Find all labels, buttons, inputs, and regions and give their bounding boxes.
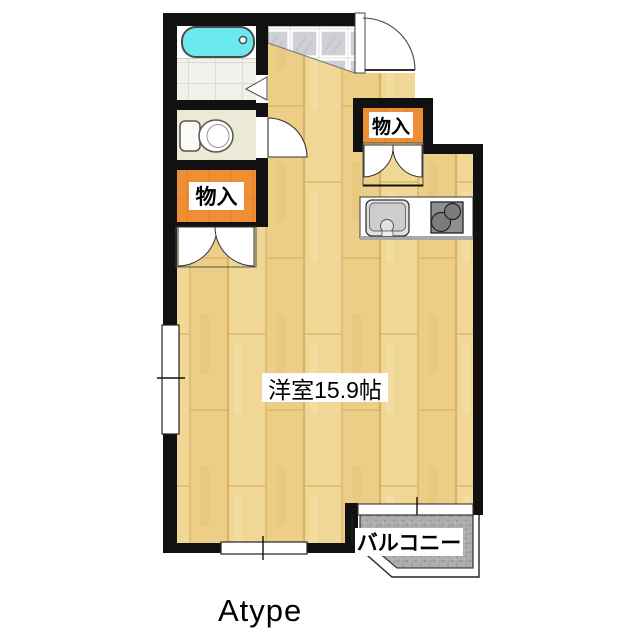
- kitchen-sink-icon: [366, 200, 409, 237]
- plan-type-label: Atype: [218, 594, 338, 628]
- door-swing-icon: [363, 18, 415, 70]
- bathtub-drain: [239, 36, 246, 43]
- window-icon: [221, 542, 307, 554]
- storage-left-label: 物入: [189, 182, 244, 210]
- window-icon: [358, 504, 473, 515]
- balcony-label: バルコニー: [355, 528, 463, 556]
- stove-icon: [431, 202, 463, 233]
- toilet-room: [176, 110, 256, 160]
- main-room-label: 洋室15.9帖: [262, 373, 388, 402]
- storage-right-label: 物入: [369, 112, 413, 138]
- kitchen-counter: [360, 197, 473, 240]
- floor-plan-page: 洋室15.9帖 物入 物入 バルコニー Atype: [0, 0, 640, 640]
- bathroom: [176, 26, 256, 103]
- entrance-door: [355, 13, 415, 73]
- window-icon: [162, 325, 179, 434]
- floor-plan-drawing: [0, 0, 640, 640]
- toilet-icon: [180, 120, 233, 152]
